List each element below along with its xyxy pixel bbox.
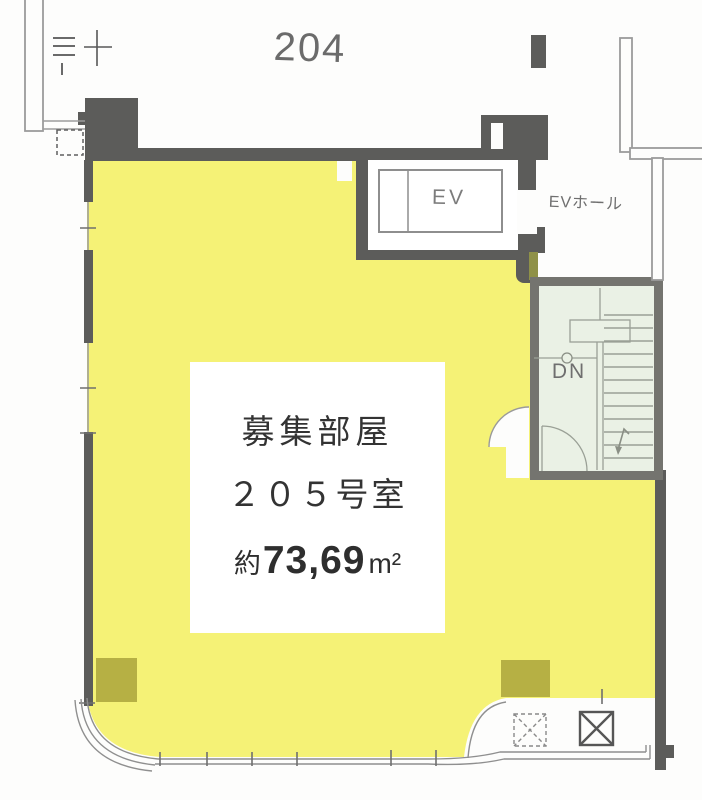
- stair-door-recess: [506, 447, 529, 478]
- duct-x-icon: [580, 712, 613, 745]
- vent-louver-icon: [53, 38, 75, 75]
- wall-cross-mark-icon: [84, 30, 112, 66]
- elevator-label: EV: [414, 185, 484, 210]
- area-prefix: 約: [234, 551, 261, 578]
- wall-slot: [491, 123, 503, 149]
- floor-plan: 204 EV EVホール DN 募集部屋 ２０５号室 約 73,69 m²: [0, 0, 702, 800]
- duct-x-icon: [514, 714, 546, 746]
- wall-niche-top: [337, 161, 352, 181]
- room-number-label: ２０５号室: [228, 478, 408, 511]
- elevator-hall-label: EVホール: [536, 187, 637, 214]
- stairs-down-label: DN: [546, 360, 592, 384]
- area-value: 73,69: [263, 541, 366, 580]
- column-block-bottom-right: [501, 660, 550, 697]
- dashed-opening: [57, 130, 83, 155]
- room-area-label: 約 73,69 m²: [234, 541, 401, 580]
- room-status-label: 募集部屋: [242, 415, 394, 448]
- area-unit: m²: [368, 550, 401, 578]
- wall-olive-sliver: [529, 252, 538, 280]
- column-block-bottom-left: [96, 658, 137, 702]
- room-204-label: 204: [267, 25, 353, 73]
- room-info-box: 募集部屋 ２０５号室 約 73,69 m²: [190, 362, 445, 633]
